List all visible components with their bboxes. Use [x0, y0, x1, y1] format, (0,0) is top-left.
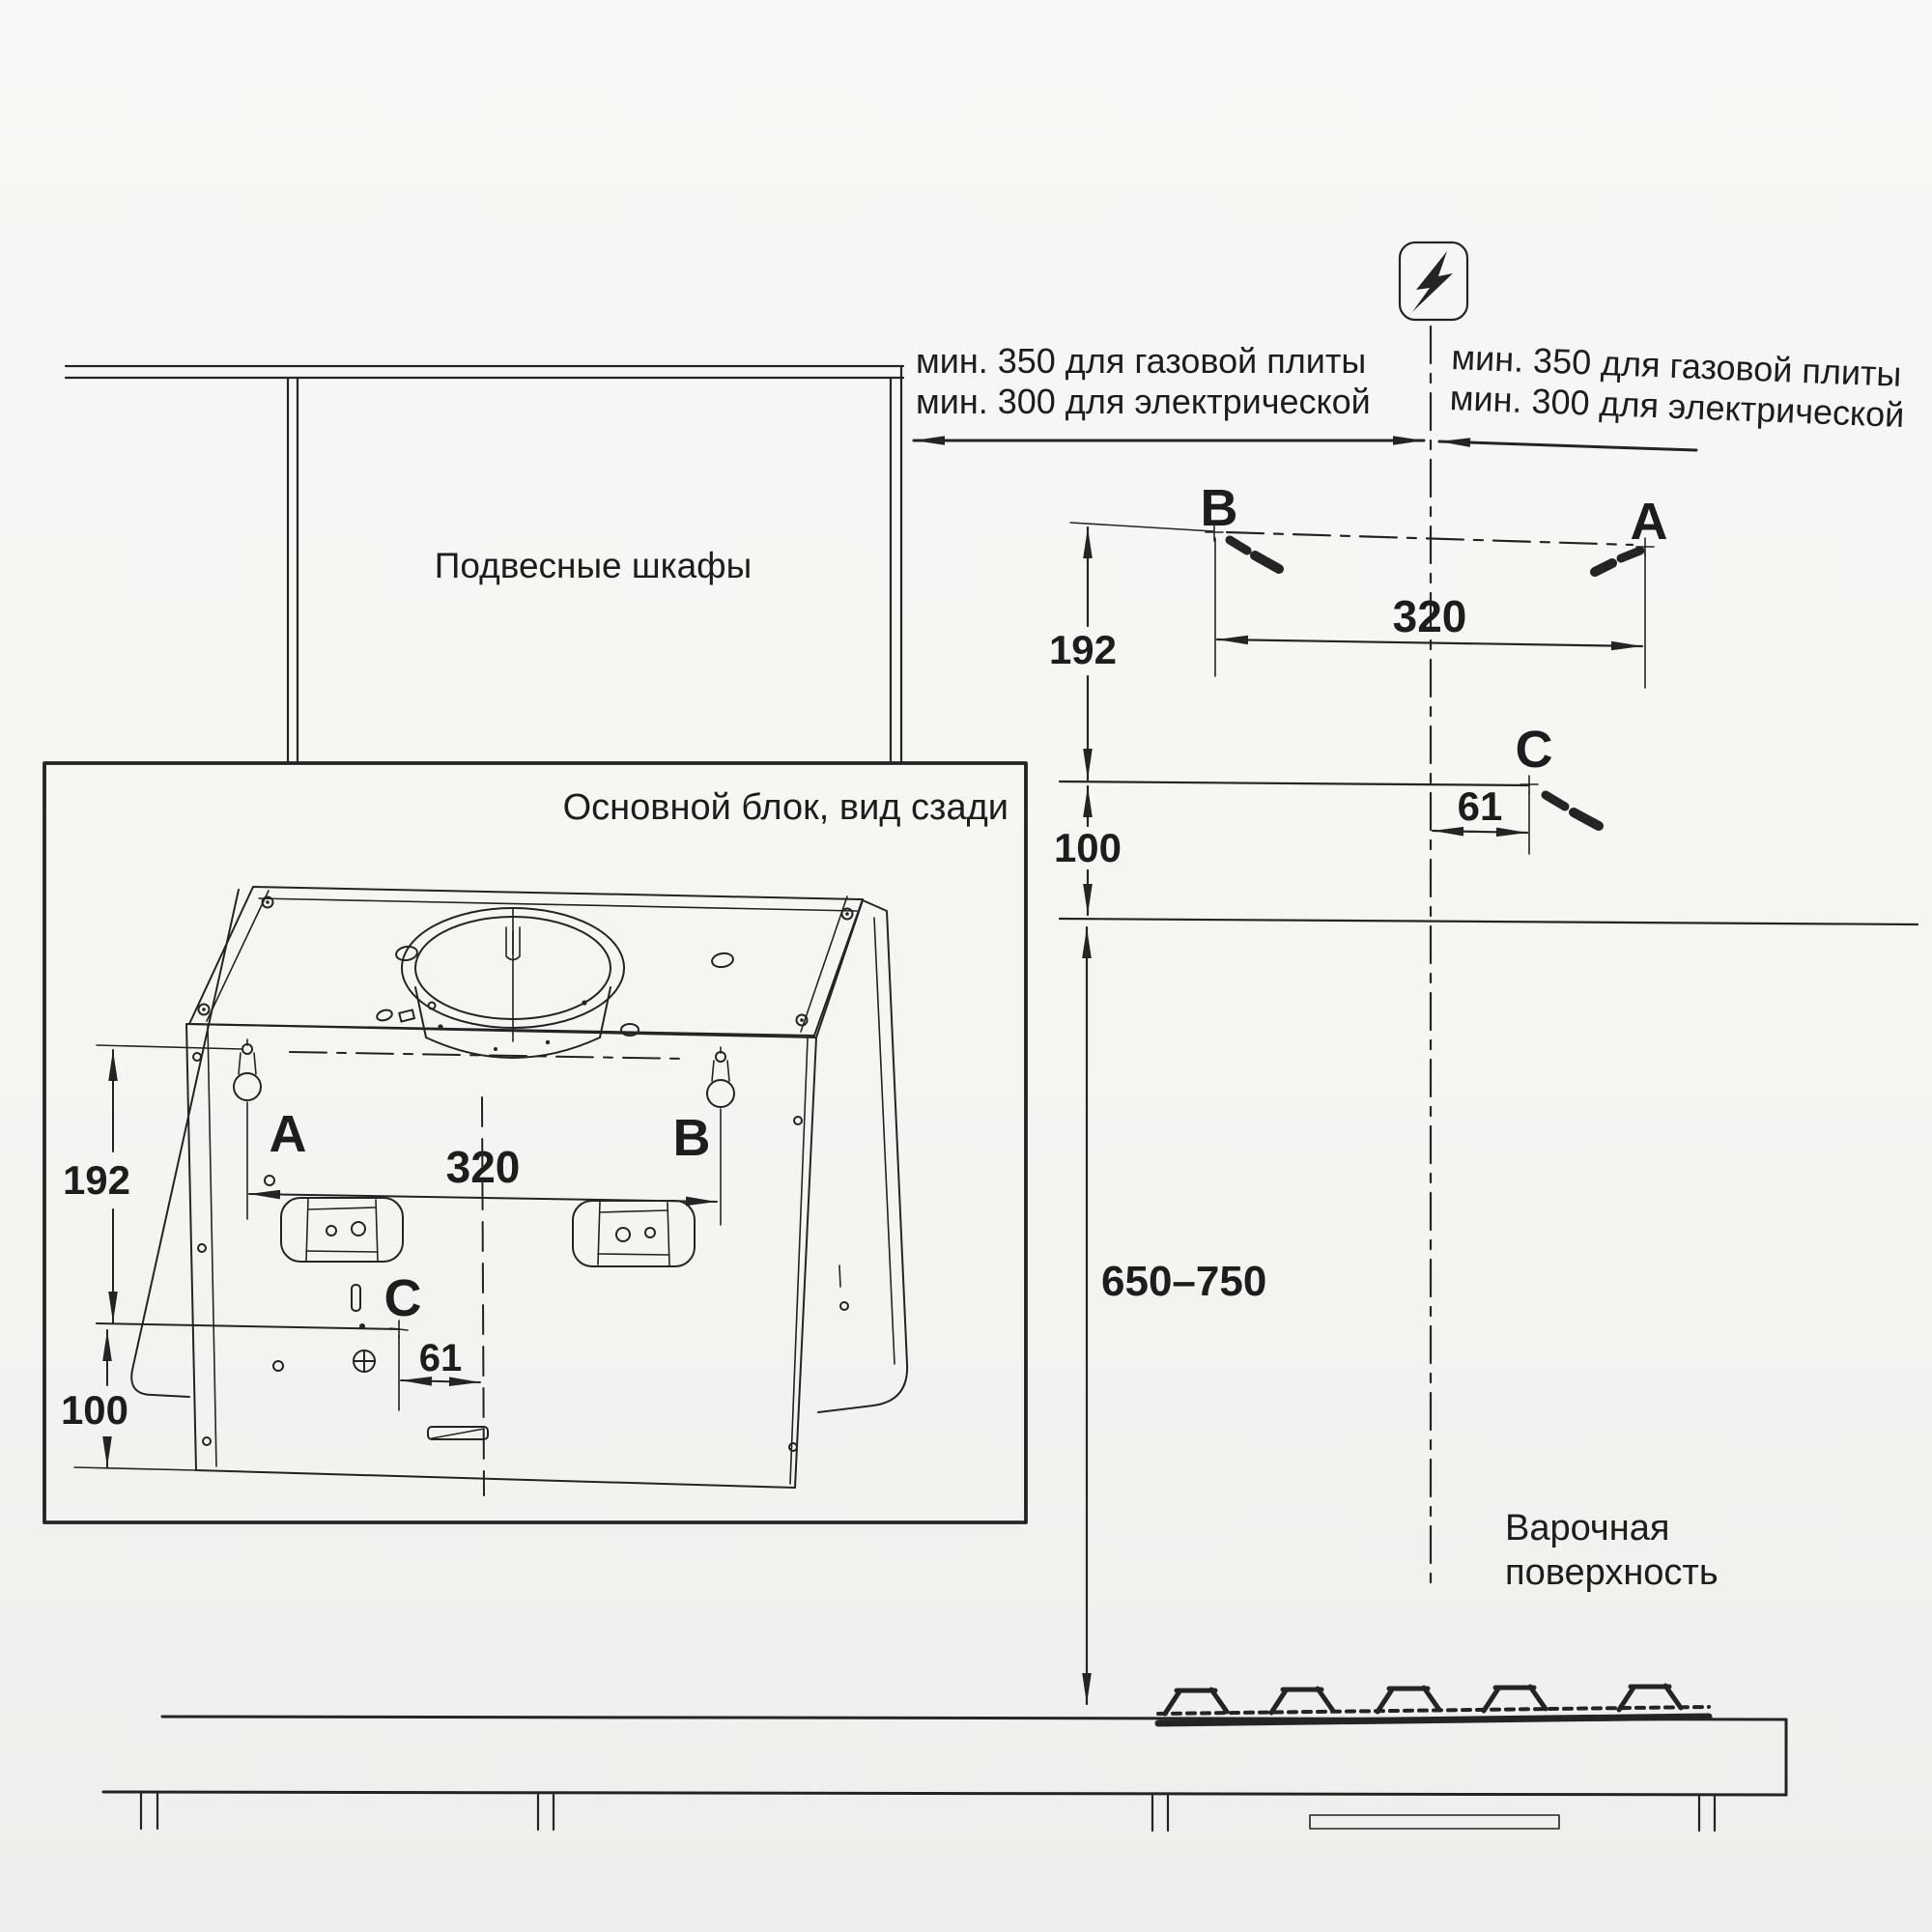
screw-icon: [1595, 551, 1640, 572]
dim-61-label: 61: [419, 1337, 463, 1379]
drawer-front: [1310, 1815, 1559, 1829]
top-face-small-marks: [376, 1000, 639, 1051]
mounting-bracket-right: [573, 1201, 695, 1266]
point-c-label: C: [1516, 721, 1553, 779]
keyhole-b: [707, 1047, 734, 1107]
dim-100-label: 100: [1054, 825, 1122, 870]
bottom-slot: [428, 1427, 488, 1439]
hood-rear-view: A B 320: [61, 887, 907, 1495]
dim-61-unit: 61: [401, 1337, 480, 1382]
screw-icon: [1546, 795, 1599, 826]
point-a-label: A: [1631, 493, 1668, 551]
dim-61-label: 61: [1458, 783, 1503, 829]
installation-diagram-page: Подвесные шкафы мин. 350 для газовой пли…: [0, 0, 1932, 1932]
wall-line: [66, 366, 903, 378]
dim-192-label: 192: [1049, 627, 1117, 672]
clearance-electric-label: мин. 300 для электрической: [916, 382, 1371, 421]
dim-100-unit: 100: [61, 1330, 196, 1470]
hob-label: Варочная поверхность: [1505, 1508, 1719, 1593]
point-b-label: B: [673, 1109, 711, 1167]
mount-point-b: B: [1201, 479, 1280, 569]
clearance-note-left: мин. 350 для газовой плиты мин. 300 для …: [916, 341, 1371, 421]
clearance-gas-label: мин. 350 для газовой плиты: [916, 341, 1366, 381]
dim-192-wall: 192: [1049, 523, 1213, 780]
screw-icon: [1230, 540, 1279, 569]
wall-mount-layout: B A: [1049, 479, 1918, 1704]
main-unit-box: Основной блок, вид сзади: [44, 763, 1026, 1522]
dim-650-750: 650–750: [1087, 927, 1266, 1704]
clearance-arrows: [914, 440, 1696, 450]
top-face-slot-left: [395, 945, 418, 961]
dim-320-wall: 320: [1217, 591, 1642, 646]
hob-label-line1: Варочная: [1505, 1508, 1669, 1548]
point-a-label: A: [270, 1105, 307, 1163]
mount-point-c-unit: C: [97, 1269, 422, 1410]
phillips-screw-icon: [354, 1350, 375, 1372]
point-c-label: C: [384, 1269, 422, 1327]
mounting-bracket-left: [281, 1198, 403, 1262]
mount-point-a: A: [1595, 493, 1668, 572]
clearance-note-right: мин. 350 для газовой плиты мин. 300 для …: [1449, 337, 1907, 435]
dim-192-label: 192: [63, 1157, 130, 1203]
dim-61-wall: 61: [1433, 783, 1527, 833]
power-symbol-icon: [1400, 242, 1467, 320]
installation-diagram: Подвесные шкафы мин. 350 для газовой пли…: [0, 0, 1932, 1932]
duct-collar: [402, 908, 624, 1058]
countertop-hob: Варочная поверхность: [103, 1508, 1786, 1831]
dim-100-wall: 100: [1054, 786, 1122, 915]
point-b-label: B: [1201, 479, 1238, 537]
lightning-bolt-icon: [1412, 251, 1453, 312]
dim-100-label: 100: [61, 1387, 128, 1433]
dim-650-750-label: 650–750: [1101, 1258, 1266, 1305]
counter-legs: [141, 1794, 1715, 1831]
mount-point-c: C: [1516, 721, 1600, 854]
hanging-cabinets-label: Подвесные шкафы: [435, 546, 752, 585]
top-face-slot-right: [711, 952, 734, 968]
hob-label-line2: поверхность: [1505, 1552, 1719, 1593]
dim-320-label: 320: [1393, 591, 1467, 641]
hanging-cabinets: Подвесные шкафы: [288, 366, 901, 762]
main-unit-label: Основной блок, вид сзади: [563, 787, 1009, 828]
